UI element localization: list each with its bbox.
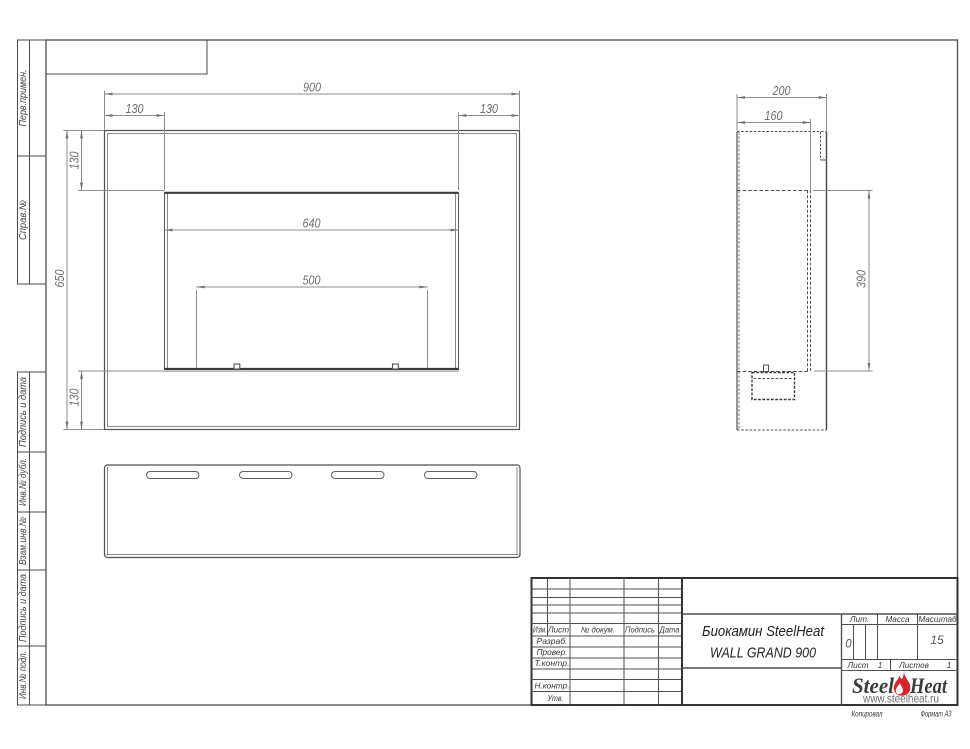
svg-text:Т.контр.: Т.контр. bbox=[535, 659, 570, 668]
svg-text:130: 130 bbox=[126, 101, 145, 116]
svg-text:Инв.№ подл.: Инв.№ подл. bbox=[18, 651, 29, 699]
svg-text:130: 130 bbox=[67, 151, 82, 170]
svg-text:Изм.: Изм. bbox=[533, 626, 547, 635]
svg-text:200: 200 bbox=[772, 83, 791, 98]
svg-text:1: 1 bbox=[947, 661, 952, 670]
svg-text:15: 15 bbox=[930, 633, 944, 647]
svg-text:Подпись и дата: Подпись и дата bbox=[18, 377, 29, 447]
svg-text:Лит.: Лит. bbox=[849, 615, 869, 624]
svg-text:500: 500 bbox=[303, 273, 322, 288]
svg-text:900: 900 bbox=[303, 80, 322, 95]
svg-text:Лист: Лист bbox=[547, 626, 569, 635]
svg-text:Утв.: Утв. bbox=[547, 694, 564, 703]
svg-text:Дата: Дата bbox=[659, 626, 680, 635]
svg-text:130: 130 bbox=[480, 101, 499, 116]
svg-text:WALL GRAND 900: WALL GRAND 900 bbox=[710, 645, 817, 662]
svg-text:0: 0 bbox=[845, 639, 852, 651]
svg-text:Подпись: Подпись bbox=[625, 626, 655, 635]
svg-text:Провер.: Провер. bbox=[537, 648, 568, 657]
svg-text:160: 160 bbox=[765, 108, 784, 123]
svg-text:Лист: Лист bbox=[846, 661, 868, 670]
svg-text:Взам.инв.№: Взам.инв.№ bbox=[18, 517, 29, 565]
svg-text:Справ.№: Справ.№ bbox=[18, 200, 29, 240]
svg-text:Копировал: Копировал bbox=[852, 710, 883, 719]
svg-text:Н.контр.: Н.контр. bbox=[535, 682, 570, 691]
svg-text:Масштаб: Масштаб bbox=[918, 615, 957, 624]
svg-text:Перв.примен.: Перв.примен. bbox=[18, 70, 29, 127]
svg-text:390: 390 bbox=[854, 269, 869, 288]
svg-text:Формат А3: Формат А3 bbox=[921, 710, 952, 719]
svg-text:Подпись и дата: Подпись и дата bbox=[18, 574, 29, 642]
svg-text:Инв.№ дубл.: Инв.№ дубл. bbox=[17, 458, 29, 506]
svg-text:Масса: Масса bbox=[885, 615, 910, 624]
svg-text:650: 650 bbox=[52, 269, 67, 288]
svg-text:Биокамин SteelHeat: Биокамин SteelHeat bbox=[702, 623, 825, 640]
svg-text:№ докум.: № докум. bbox=[581, 626, 615, 635]
svg-text:1: 1 bbox=[878, 661, 883, 670]
svg-text:130: 130 bbox=[67, 388, 82, 407]
svg-text:Разраб.: Разраб. bbox=[537, 637, 568, 646]
svg-text:Листов: Листов bbox=[898, 661, 930, 670]
svg-text:www.steelheat.ru: www.steelheat.ru bbox=[862, 694, 939, 706]
svg-text:640: 640 bbox=[303, 216, 322, 231]
